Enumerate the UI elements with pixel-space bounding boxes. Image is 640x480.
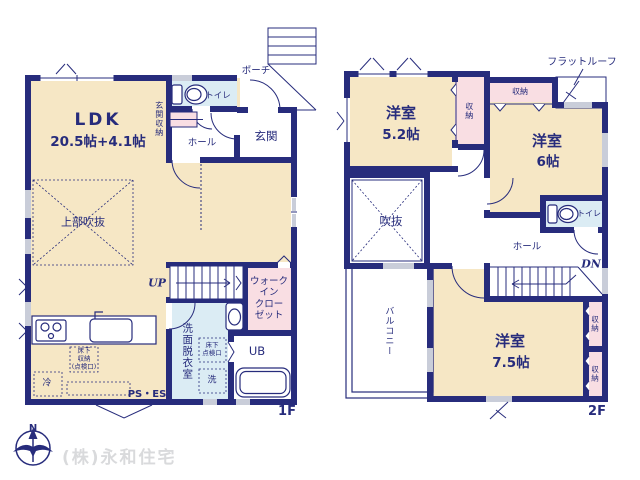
room-label-closet-right-lower: 収納 xyxy=(591,366,600,383)
stairs-up-1f xyxy=(170,266,243,299)
label-upper-void: 上部吹抜 xyxy=(61,215,105,228)
room-label-bedroom1: 洋室 xyxy=(386,104,416,122)
floorplan-canvas: LDK 20.5帖+4.1帖 上部吹抜 トイレ 玄関収納 ホール 玄関 ポーチ … xyxy=(0,0,640,480)
room-label-walk-in-closet: ウォーク イン クロー ゼット xyxy=(250,276,288,322)
washbasin-icon xyxy=(226,303,243,330)
floor1-label: 1F xyxy=(278,404,296,420)
floor2-label: 2F xyxy=(588,404,606,420)
room-label-unit-bath: UB xyxy=(249,345,265,359)
label-stairs-up: UP xyxy=(148,276,166,289)
label-stairs-down: DN xyxy=(581,257,601,270)
label-flat-roof: フラットルーフ xyxy=(547,57,616,69)
room-label-balcony: バルコニー xyxy=(383,306,394,356)
room-size-bedroom3: 7.5帖 xyxy=(492,355,529,371)
room-label-hall-2f: ホール xyxy=(513,241,542,252)
label-underfloor-storage: 床下 収納 (点検口) xyxy=(72,347,97,370)
room-label-closet-side: 収納 xyxy=(464,102,474,120)
porch-steps-icon xyxy=(268,28,316,110)
room-label-toilet-1f: トイレ xyxy=(205,91,231,101)
label-void-2f: 吹抜 xyxy=(380,215,403,229)
room-label-bedroom2: 洋室 xyxy=(532,132,562,150)
label-ps-es: PS・ES xyxy=(128,389,167,401)
compass-north-label: N xyxy=(29,423,37,435)
room-label-closet-top: 収納 xyxy=(512,87,528,97)
label-entrance-storage: 玄関収納 xyxy=(154,101,164,137)
room-label-bedroom3: 洋室 xyxy=(495,332,525,350)
room-label-hall-1f: ホール xyxy=(188,137,217,148)
floorplan-drawing xyxy=(0,0,640,480)
toilet-icon-2f xyxy=(548,205,578,223)
company-watermark: (株)永和住宅 xyxy=(62,443,177,468)
room-size-bedroom2: 6帖 xyxy=(537,154,560,170)
kitchen-counter-icon xyxy=(32,312,156,344)
room-size-bedroom1: 5.2帖 xyxy=(382,127,419,143)
room-label-toilet-2f: トイレ xyxy=(577,209,601,219)
bathtub-icon xyxy=(236,368,290,397)
label-fridge: 冷 xyxy=(42,379,51,390)
label-underfloor-access: 床下 点検口 xyxy=(202,342,222,358)
toilet-icon-1f xyxy=(172,85,207,104)
sink-icon xyxy=(90,319,132,342)
room-label-porch: ポーチ xyxy=(242,65,271,76)
room-label-washroom: 洗面脱衣室 xyxy=(181,322,194,380)
room-label-closet-right-upper: 収納 xyxy=(591,316,600,333)
room-label-ldk: LDK xyxy=(74,110,121,130)
room-label-entrance: 玄関 xyxy=(255,130,278,144)
label-laundry: 洗 xyxy=(207,376,216,387)
room-size-ldk: 20.5帖+4.1帖 xyxy=(50,134,146,150)
floor1-bottom-vent-mark xyxy=(96,405,152,418)
